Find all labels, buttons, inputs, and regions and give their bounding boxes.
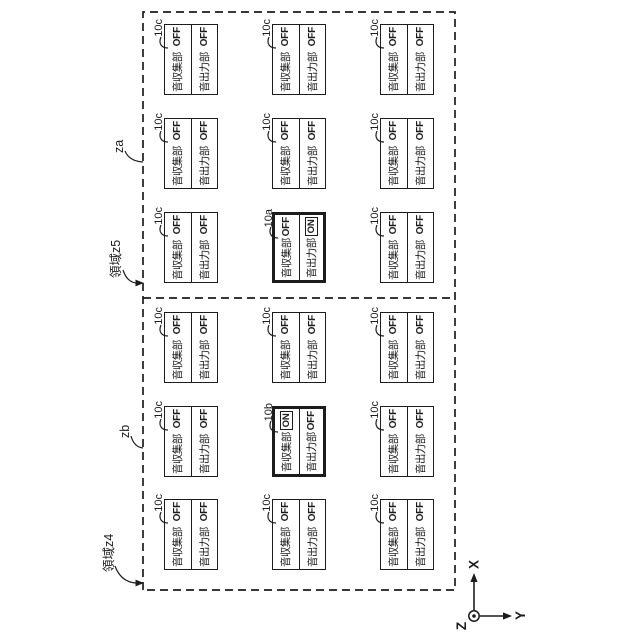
unit-ref-label: 10a — [261, 209, 275, 239]
unit-ref-text: 10c — [262, 307, 273, 325]
lead-squiggle-icon — [372, 418, 385, 431]
unit-10c: 10c 音収集部 OFF 音出力部 OFF — [164, 24, 218, 95]
sound-output-state: ON — [305, 217, 318, 236]
sound-collect-state: OFF — [388, 215, 399, 234]
lead-squiggle-icon — [156, 36, 169, 49]
sound-output-cell: 音出力部 OFF — [191, 213, 218, 282]
sound-output-label: 音出力部 — [197, 527, 212, 567]
patent-figure-canvas: 領域z4 zb 領域z5 za X Y Z 10c — [0, 0, 640, 640]
sound-output-label: 音出力部 — [304, 432, 319, 472]
unit-ref-text: 10c — [262, 113, 273, 131]
unit-ref-label: 10c — [151, 113, 165, 143]
sound-output-cell: 音出力部 OFF — [299, 409, 324, 474]
sound-output-cell: 音出力部 OFF — [191, 313, 218, 382]
sound-collect-state: OFF — [172, 502, 183, 521]
sound-collect-label: 音収集部 — [170, 527, 185, 567]
lead-squiggle-icon — [264, 511, 277, 524]
sound-output-state: OFF — [306, 411, 317, 430]
sound-output-label: 音出力部 — [305, 52, 320, 92]
sound-collect-state: OFF — [280, 502, 291, 521]
sound-collect-label: 音収集部 — [279, 432, 294, 472]
unit-10c: 10c 音収集部 OFF 音出力部 OFF — [164, 406, 218, 477]
sound-output-state: OFF — [415, 502, 426, 521]
sound-collect-label: 音収集部 — [386, 52, 401, 92]
sound-output-cell: 音出力部 OFF — [299, 313, 326, 382]
sound-collect-label: 音収集部 — [386, 340, 401, 380]
sound-output-cell: 音出力部 OFF — [407, 25, 434, 94]
sound-output-cell: 音出力部 OFF — [407, 500, 434, 569]
unit-ref-text: 10c — [370, 401, 381, 419]
lead-squiggle-icon — [266, 226, 279, 239]
sound-output-state: OFF — [415, 215, 426, 234]
sound-output-state: OFF — [199, 409, 210, 428]
sound-output-cell: 音出力部 OFF — [191, 25, 218, 94]
unit-ref-label: 10c — [259, 307, 273, 337]
sound-output-state: OFF — [415, 315, 426, 334]
sound-output-label: 音出力部 — [197, 52, 212, 92]
sound-collect-label: 音収集部 — [279, 238, 294, 278]
unit-ref-label: 10c — [367, 494, 381, 524]
sound-output-state: OFF — [307, 315, 318, 334]
sound-collect-cell: 音収集部 ON — [275, 409, 299, 474]
sound-collect-label: 音収集部 — [170, 434, 185, 474]
sound-collect-state: OFF — [388, 409, 399, 428]
unit-ref-text: 10c — [154, 401, 165, 419]
sound-collect-label: 音収集部 — [386, 146, 401, 186]
sound-output-label: 音出力部 — [197, 340, 212, 380]
lead-squiggle-icon — [264, 324, 277, 337]
lead-squiggle-icon — [372, 36, 385, 49]
lead-squiggle-icon — [156, 130, 169, 143]
lead-squiggle-icon — [264, 130, 277, 143]
unit-10b: 10b 音収集部 ON 音出力部 OFF — [272, 406, 326, 477]
unit-10a: 10a 音収集部 OFF 音出力部 ON — [272, 212, 326, 283]
sound-collect-state: OFF — [172, 27, 183, 46]
sound-collect-state: OFF — [172, 315, 183, 334]
sound-collect-label: 音収集部 — [278, 52, 293, 92]
unit-ref-text: 10c — [370, 113, 381, 131]
sound-output-cell: 音出力部 OFF — [299, 25, 326, 94]
unit-ref-label: 10c — [151, 207, 165, 237]
unit-10c: 10c 音収集部 OFF 音出力部 OFF — [380, 212, 434, 283]
sound-output-state: OFF — [307, 121, 318, 140]
sound-output-label: 音出力部 — [305, 527, 320, 567]
unit-ref-text: 10c — [154, 19, 165, 37]
sound-output-label: 音出力部 — [413, 340, 428, 380]
unit-10c: 10c 音収集部 OFF 音出力部 OFF — [164, 312, 218, 383]
unit-ref-text: 10c — [370, 494, 381, 512]
unit-ref-text: 10b — [264, 403, 275, 421]
sound-collect-state: OFF — [280, 27, 291, 46]
sound-collect-state: OFF — [172, 409, 183, 428]
sound-output-label: 音出力部 — [413, 240, 428, 280]
unit-ref-text: 10c — [154, 307, 165, 325]
lead-squiggle-icon — [372, 511, 385, 524]
unit-10c: 10c 音収集部 OFF 音出力部 OFF — [380, 24, 434, 95]
sound-output-cell: 音出力部 OFF — [299, 500, 326, 569]
unit-ref-label: 10c — [367, 401, 381, 431]
unit-ref-text: 10c — [154, 207, 165, 225]
unit-ref-text: 10c — [262, 494, 273, 512]
sound-output-state: OFF — [415, 409, 426, 428]
unit-ref-label: 10c — [259, 113, 273, 143]
sound-collect-state: OFF — [172, 121, 183, 140]
unit-ref-text: 10a — [264, 209, 275, 227]
sound-output-cell: 音出力部 OFF — [191, 500, 218, 569]
lead-squiggle-icon — [372, 324, 385, 337]
sound-collect-label: 音収集部 — [386, 240, 401, 280]
unit-ref-label: 10c — [367, 307, 381, 337]
sound-output-cell: 音出力部 OFF — [407, 407, 434, 476]
sound-collect-label: 音収集部 — [386, 527, 401, 567]
sound-collect-state: OFF — [388, 27, 399, 46]
sound-output-state: OFF — [307, 502, 318, 521]
sound-output-cell: 音出力部 OFF — [191, 407, 218, 476]
unit-10c: 10c 音収集部 OFF 音出力部 OFF — [380, 499, 434, 570]
rotated-figure: 領域z4 zb 領域z5 za X Y Z 10c — [0, 0, 640, 640]
unit-ref-text: 10c — [370, 207, 381, 225]
sound-output-label: 音出力部 — [197, 240, 212, 280]
unit-ref-label: 10c — [367, 207, 381, 237]
unit-ref-text: 10c — [154, 494, 165, 512]
lead-squiggle-icon — [156, 511, 169, 524]
sound-collect-state: OFF — [172, 215, 183, 234]
sound-output-cell: 音出力部 OFF — [407, 213, 434, 282]
unit-10c: 10c 音収集部 OFF 音出力部 OFF — [380, 406, 434, 477]
sound-collect-label: 音収集部 — [170, 340, 185, 380]
sound-collect-label: 音収集部 — [278, 340, 293, 380]
lead-squiggle-icon — [266, 420, 279, 433]
unit-10c: 10c 音収集部 OFF 音出力部 OFF — [272, 312, 326, 383]
sound-output-label: 音出力部 — [413, 52, 428, 92]
sound-output-state: OFF — [199, 27, 210, 46]
sound-output-cell: 音出力部 OFF — [407, 313, 434, 382]
sound-collect-state: OFF — [280, 315, 291, 334]
sound-collect-state: OFF — [281, 217, 292, 236]
sound-output-cell: 音出力部 ON — [299, 215, 324, 280]
lead-squiggle-icon — [372, 224, 385, 237]
unit-10c: 10c 音収集部 OFF 音出力部 OFF — [272, 118, 326, 189]
unit-10c: 10c 音収集部 OFF 音出力部 OFF — [272, 499, 326, 570]
sound-collect-label: 音収集部 — [170, 52, 185, 92]
sound-output-cell: 音出力部 OFF — [407, 119, 434, 188]
sound-collect-state: OFF — [280, 121, 291, 140]
unit-10c: 10c 音収集部 OFF 音出力部 OFF — [380, 118, 434, 189]
unit-10c: 10c 音収集部 OFF 音出力部 OFF — [164, 212, 218, 283]
sound-output-cell: 音出力部 OFF — [299, 119, 326, 188]
sound-collect-cell: 音収集部 OFF — [275, 215, 299, 280]
unit-ref-label: 10c — [367, 113, 381, 143]
sound-output-label: 音出力部 — [304, 238, 319, 278]
sound-output-label: 音出力部 — [413, 434, 428, 474]
unit-ref-label: 10c — [151, 19, 165, 49]
sound-collect-state: OFF — [388, 315, 399, 334]
sound-output-state: OFF — [199, 502, 210, 521]
unit-ref-text: 10c — [370, 19, 381, 37]
sound-collect-label: 音収集部 — [278, 146, 293, 186]
lead-squiggle-icon — [156, 418, 169, 431]
sound-output-state: OFF — [415, 27, 426, 46]
sound-output-label: 音出力部 — [413, 146, 428, 186]
lead-squiggle-icon — [264, 36, 277, 49]
sound-collect-state: OFF — [388, 121, 399, 140]
sound-output-cell: 音出力部 OFF — [191, 119, 218, 188]
sound-collect-state: OFF — [388, 502, 399, 521]
unit-ref-text: 10c — [154, 113, 165, 131]
sound-collect-label: 音収集部 — [386, 434, 401, 474]
sound-output-state: OFF — [199, 121, 210, 140]
unit-grid: 10c 音収集部 OFF 音出力部 OFF 10c 音収集部 OFF 音出力部 … — [0, 0, 640, 640]
sound-collect-label: 音収集部 — [170, 240, 185, 280]
sound-output-label: 音出力部 — [197, 146, 212, 186]
unit-10c: 10c 音収集部 OFF 音出力部 OFF — [380, 312, 434, 383]
unit-ref-label: 10c — [151, 307, 165, 337]
lead-squiggle-icon — [156, 324, 169, 337]
unit-ref-label: 10c — [259, 494, 273, 524]
unit-ref-label: 10c — [151, 494, 165, 524]
sound-collect-state: ON — [280, 411, 293, 430]
sound-collect-label: 音収集部 — [170, 146, 185, 186]
lead-squiggle-icon — [156, 224, 169, 237]
unit-10c: 10c 音収集部 OFF 音出力部 OFF — [164, 118, 218, 189]
unit-ref-text: 10c — [262, 19, 273, 37]
sound-output-label: 音出力部 — [197, 434, 212, 474]
sound-output-label: 音出力部 — [305, 340, 320, 380]
unit-ref-label: 10c — [367, 19, 381, 49]
sound-output-label: 音出力部 — [305, 146, 320, 186]
unit-10c: 10c 音収集部 OFF 音出力部 OFF — [164, 499, 218, 570]
sound-output-state: OFF — [307, 27, 318, 46]
unit-ref-label: 10c — [259, 19, 273, 49]
sound-output-state: OFF — [415, 121, 426, 140]
lead-squiggle-icon — [372, 130, 385, 143]
sound-output-state: OFF — [199, 315, 210, 334]
unit-ref-label: 10b — [261, 403, 275, 433]
unit-10c: 10c 音収集部 OFF 音出力部 OFF — [272, 24, 326, 95]
sound-output-state: OFF — [199, 215, 210, 234]
sound-output-label: 音出力部 — [413, 527, 428, 567]
unit-ref-label: 10c — [151, 401, 165, 431]
sound-collect-label: 音収集部 — [278, 527, 293, 567]
unit-ref-text: 10c — [370, 307, 381, 325]
